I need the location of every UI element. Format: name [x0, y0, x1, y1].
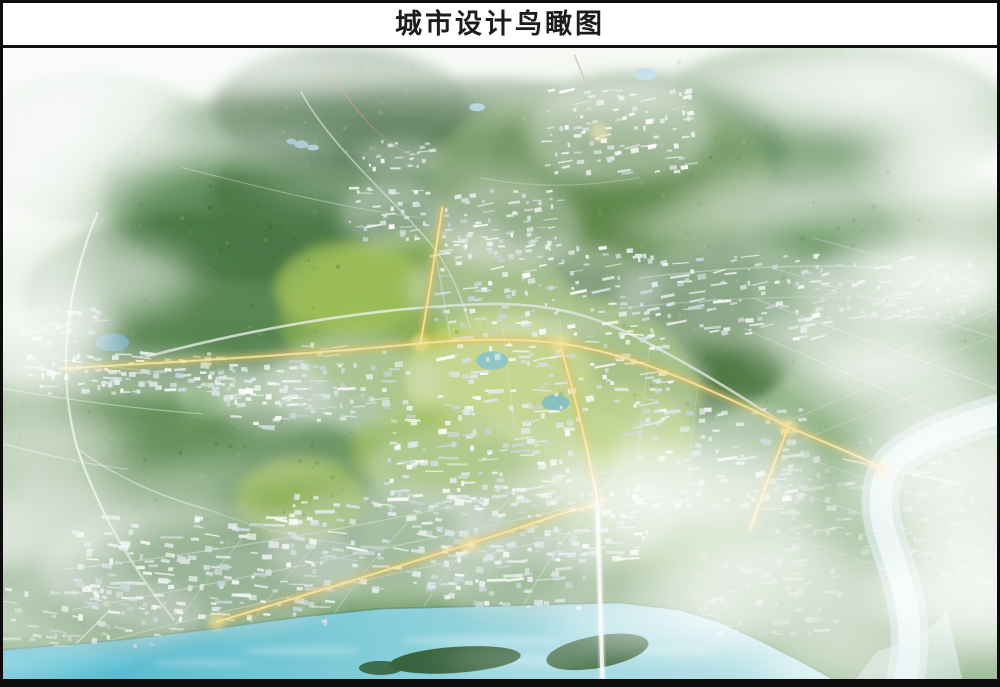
- birdseye-rendering: [3, 48, 997, 679]
- framed-plate: 城市设计鸟瞰图: [0, 0, 1000, 687]
- page-title: 城市设计鸟瞰图: [395, 11, 605, 38]
- urban-design-aerial-view: [3, 48, 997, 679]
- title-bar: 城市设计鸟瞰图: [3, 3, 997, 48]
